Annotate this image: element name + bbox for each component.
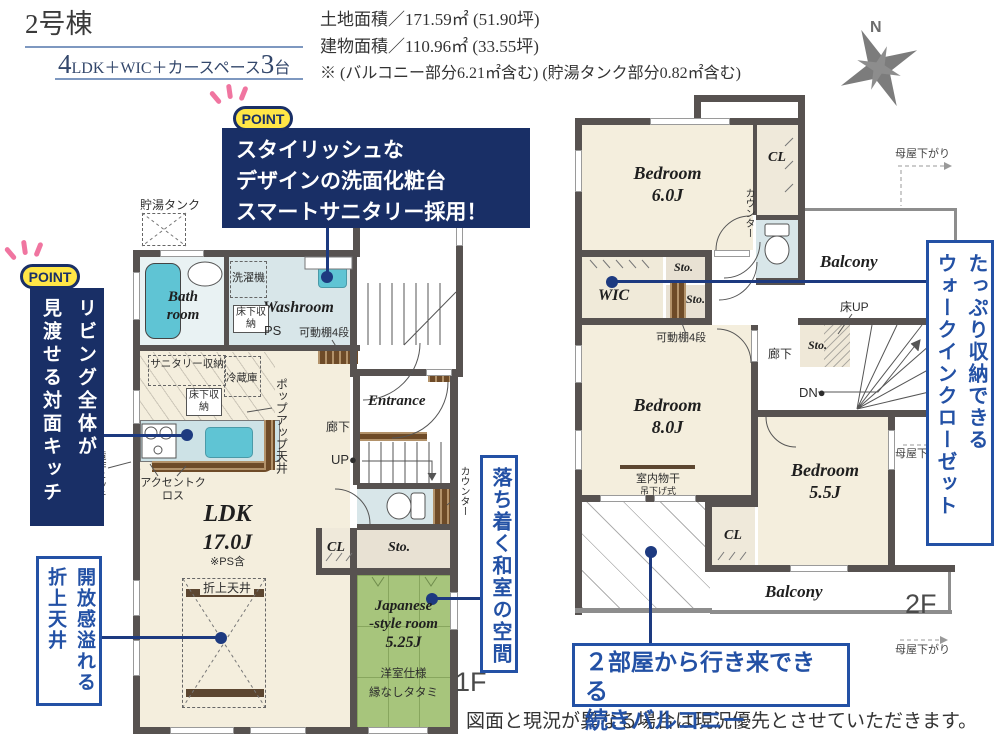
- counter-label-2f: カウンター: [742, 188, 754, 244]
- leader-dot: [645, 546, 657, 558]
- callout-ceiling-col1: 開放感溢れる: [70, 567, 99, 703]
- entrance-label: Entrance: [368, 392, 426, 410]
- washer-label: 洗濯機: [232, 272, 265, 285]
- sto-label-2f-3: Sto.: [808, 338, 827, 352]
- callout-vanity-line3: スマートサニタリー採用！: [236, 197, 530, 228]
- underfloor-label: 床下収納: [186, 388, 222, 416]
- leader-line: [326, 227, 329, 273]
- drying-type-label: 吊下げ式: [620, 486, 696, 497]
- sparkle-icon: [209, 90, 222, 105]
- japanese-room-line2: -style room: [357, 615, 450, 633]
- yoshitsu-note: 洋室仕様: [357, 668, 450, 682]
- callout-wic: たっぷり収納できる ウォークインクローゼット: [926, 240, 994, 546]
- shelf-2f: [670, 283, 686, 318]
- leader-line: [103, 434, 183, 437]
- kitchen-sink: [205, 427, 253, 458]
- wall: [350, 257, 357, 377]
- sparkle-icon: [226, 84, 233, 100]
- leader-dot: [215, 632, 227, 644]
- window: [650, 118, 730, 125]
- ldk-label: LDK 17.0J: [180, 500, 275, 555]
- door-gap: [714, 250, 750, 257]
- ldk-name: LDK: [180, 500, 275, 529]
- window: [133, 580, 140, 616]
- callout-kitchen: リビング全体が 見渡せる対面キッチン: [30, 288, 104, 526]
- wall: [357, 524, 458, 530]
- floor2-label: 2F: [905, 588, 937, 620]
- sto-label-1f: Sto.: [388, 540, 410, 557]
- wall: [751, 410, 955, 417]
- sto-label-2f-1: Sto.: [674, 260, 693, 274]
- bathroom-label: Bath room: [150, 288, 216, 324]
- sparkle-icon: [238, 86, 248, 102]
- up-label: UP●: [331, 452, 357, 468]
- cl-label-2f-bottom: CL: [724, 528, 742, 545]
- toilet-counter: [433, 489, 450, 524]
- leader-line: [612, 280, 927, 283]
- japanese-room-line1: Japanese: [357, 597, 450, 615]
- wall: [353, 375, 360, 485]
- popup-ceiling-label: ポップアップ天井: [274, 378, 288, 488]
- point-badge: POINT: [233, 106, 293, 131]
- leader-dot: [321, 271, 333, 283]
- sparkle-icon: [21, 240, 28, 256]
- wall: [705, 502, 712, 572]
- hall-label-1f: 廊下: [326, 420, 350, 434]
- moya-label-top: 母屋下がり: [895, 148, 950, 161]
- plan-type: 4LDK＋WIC＋カースペース3台: [58, 48, 290, 80]
- drying-label: 室内物干: [620, 473, 696, 486]
- wall: [316, 528, 322, 575]
- callout-washitsu: 落ち着く和室の空間: [480, 455, 518, 673]
- washroom-label: Washroom: [263, 298, 334, 317]
- plan-tail: 台: [274, 60, 290, 77]
- callout-kitchen-col1: リビング全体が: [68, 298, 103, 526]
- sanitary-label: サニタリー収納: [149, 358, 225, 371]
- wall: [350, 528, 357, 734]
- window: [170, 727, 234, 734]
- ps-note-label: ※PS含: [195, 556, 260, 569]
- area-note: ※ (バルコニー部分6.21㎡含む) (貯湯タンク部分0.82㎡含む): [320, 64, 741, 83]
- tank-label: 貯湯タンク: [140, 198, 200, 212]
- hall-label-2f: 廊下: [768, 347, 792, 361]
- window: [160, 250, 204, 257]
- tatami-note: 縁なしタタミ: [357, 687, 450, 701]
- callout-vanity-line2: デザインの洗面化粧台: [236, 166, 530, 197]
- bedroom55-size: 5.5J: [766, 482, 884, 504]
- wall: [705, 250, 712, 325]
- bedroom8-name: Bedroom: [600, 395, 735, 417]
- shelf-label-2f: 可動棚4段: [656, 332, 706, 345]
- bedroom6-size: 6.0J: [600, 185, 735, 207]
- wall: [224, 257, 229, 345]
- genkan-step: [357, 432, 427, 441]
- counter-label-1f: カウンター: [457, 466, 469, 524]
- callout-vanity-line1: スタイリッシュな: [236, 135, 530, 166]
- bathroom-label-line1: Bath: [150, 288, 216, 306]
- window: [368, 727, 428, 734]
- cl-label-1f: CL: [327, 540, 345, 557]
- floorplan-flyer: 2号棟 4LDK＋WIC＋カースペース3台 土地面積／171.59㎡ (51.9…: [0, 0, 1000, 750]
- balcony-label-top: Balcony: [820, 252, 878, 272]
- callout-balcony-line1: ２部屋から行き来できる: [585, 648, 837, 706]
- moya-label-bottom: 母屋下がり: [895, 644, 950, 657]
- drying-pole: [620, 465, 695, 469]
- bedroom55-name: Bedroom: [766, 460, 884, 482]
- oriage-label: 折上天井: [200, 581, 254, 595]
- land-area: 土地面積／171.59㎡ (51.90坪): [320, 10, 540, 30]
- ps-label: PS: [264, 323, 281, 339]
- wall: [575, 250, 712, 257]
- plan-num-3: 3: [261, 49, 275, 79]
- floor-up-label: 床UP: [840, 300, 869, 314]
- callout-wic-col2: ウォークインクローゼット: [929, 253, 960, 543]
- dn-label: DN●: [799, 385, 826, 401]
- building-area: 建物面積／110.96㎡ (33.55坪): [320, 37, 539, 57]
- callout-ceiling: 開放感溢れる 折上天井: [36, 556, 102, 706]
- window: [133, 640, 140, 676]
- wall: [357, 483, 458, 489]
- leader-line: [649, 551, 652, 644]
- compass-n-label: N: [870, 18, 882, 37]
- bedroom55-label: Bedroom 5.5J: [766, 460, 884, 503]
- unit-title: 2号棟: [25, 8, 93, 40]
- callout-vanity: スタイリッシュな デザインの洗面化粧台 スマートサニタリー採用！: [222, 128, 530, 228]
- shelf-label: 可動棚4段: [299, 327, 349, 340]
- wall: [756, 215, 805, 220]
- sto-label-2f-2: Sto.: [686, 292, 705, 306]
- leader-dot: [181, 429, 193, 441]
- cl-label-2f-top: CL: [768, 150, 786, 167]
- wall: [133, 345, 360, 351]
- window: [888, 430, 895, 470]
- wic-label: WIC: [598, 286, 629, 305]
- room-toilet-2f: [756, 220, 798, 278]
- balcony-railing: [948, 572, 951, 614]
- window: [790, 565, 848, 572]
- japanese-room-size: 5.25J: [357, 633, 450, 652]
- window: [575, 150, 582, 192]
- ldk-size: 17.0J: [180, 529, 275, 555]
- bathroom-label-line2: room: [150, 306, 216, 324]
- callout-wic-col1: たっぷり収納できる: [960, 253, 991, 543]
- floor-up-hatch: [824, 325, 850, 367]
- wall: [798, 95, 805, 285]
- callout-balcony-line2: 続きバルコニー: [585, 706, 837, 735]
- japanese-room-label: Japanese -style room 5.25J: [357, 597, 450, 652]
- fridge-label: 冷蔵庫: [226, 372, 258, 385]
- wall: [694, 95, 805, 102]
- plan-num-4: 4: [58, 49, 72, 79]
- callout-balcony: ２部屋から行き来できる 続きバルコニー: [572, 643, 850, 707]
- room-cl-2f-top: [757, 125, 798, 215]
- window: [575, 345, 582, 383]
- callout-kitchen-col2: 見渡せる対面キッチン: [0, 298, 68, 526]
- balcony-railing: [575, 608, 712, 613]
- plan-mid: LDK＋WIC＋カースペース: [72, 60, 261, 77]
- counter-edge: [152, 461, 274, 472]
- bedroom8-size: 8.0J: [600, 417, 735, 439]
- wall: [705, 500, 758, 507]
- callout-ceiling-col2: 折上天井: [41, 567, 70, 703]
- wall: [575, 318, 712, 325]
- window: [133, 272, 140, 320]
- door-gap: [426, 369, 452, 376]
- window: [575, 430, 582, 470]
- wall: [316, 568, 458, 575]
- sparkle-icon: [4, 246, 17, 261]
- point-badge: POINT: [20, 264, 80, 289]
- tank-box: [142, 213, 186, 246]
- bedroom8-label: Bedroom 8.0J: [600, 395, 735, 438]
- bedroom6-name: Bedroom: [600, 163, 735, 185]
- callout-washitsu-text: 落ち着く和室の空間: [489, 467, 511, 665]
- leader-line: [101, 636, 221, 639]
- balcony-label-bottom: Balcony: [765, 582, 823, 602]
- window: [250, 727, 306, 734]
- door-gap: [751, 330, 758, 362]
- sparkle-icon: [33, 242, 43, 258]
- balcony-railing: [805, 208, 957, 211]
- window: [133, 390, 140, 424]
- room-toilet-1f: [357, 489, 433, 524]
- bedroom6-label: Bedroom 6.0J: [600, 163, 735, 206]
